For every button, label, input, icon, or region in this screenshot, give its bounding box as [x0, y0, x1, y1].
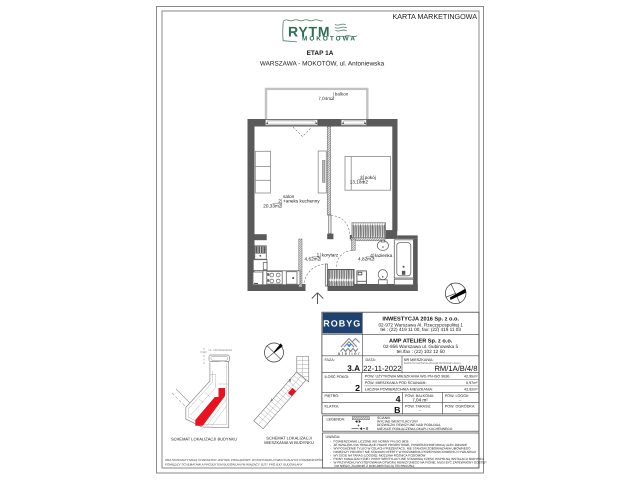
svg-text:3.A: 3.A: [347, 364, 360, 373]
svg-text:atelier: atelier: [338, 351, 362, 356]
svg-text:POMIĘDZY SCHEMATAMI A PROJEKTE: POMIĘDZY SCHEMATAMI A PROJEKTEM BUDOWLAN…: [165, 463, 303, 467]
svg-text:PIĘTRO:: PIĘTRO:: [325, 394, 340, 398]
svg-text:UWAGA:: UWAGA:: [326, 435, 341, 439]
svg-text:ETAP 1A: ETAP 1A: [307, 50, 334, 57]
svg-text:OBA SCHEMATY MAJĄ CHARAKTER JE: OBA SCHEMATY MAJĄ CHARAKTER JEDYNIE POGL…: [165, 458, 323, 462]
svg-text:DO NIEGO, ZGODNIE Z DOKUMENTAC: DO NIEGO, ZGODNIE Z DOKUMENTACJĄ TECHNIC…: [335, 464, 416, 468]
svg-text:FAZA:: FAZA:: [325, 358, 335, 362]
svg-text:42,95m²: 42,95m²: [464, 375, 478, 379]
svg-text:POW. UŻYTKOWA MIESZKANIA WG PN: POW. UŻYTKOWA MIESZKANIA WG PN-ISO 9836:: [365, 374, 451, 379]
svg-text:7,04m2: 7,04m2: [318, 96, 334, 101]
svg-text:POW. LOGGII:: POW. LOGGII:: [445, 394, 469, 398]
svg-text:43,92m²: 43,92m²: [464, 388, 478, 392]
svg-text:WARSZAWA - MOKOTÓW, ul. Antoni: WARSZAWA - MOKOTÓW, ul. Antoniewska: [260, 60, 385, 68]
svg-text:MOKOTOWA: MOKOTOWA: [302, 36, 357, 43]
svg-text:korytarz: korytarz: [322, 253, 339, 258]
svg-text:+aneks kuchenny: +aneks kuchenny: [283, 199, 320, 204]
svg-text:RM/1A/B/4/8: RM/1A/B/4/8: [434, 364, 477, 373]
svg-text:SCHEMAT LOKALIZACJI BUDYNKU: SCHEMAT LOKALIZACJI BUDYNKU: [171, 437, 237, 442]
svg-text:POW. MIESZKANIA POD ŚCIANAMI:: POW. MIESZKANIA POD ŚCIANAMI:: [365, 380, 427, 385]
svg-text:UL. ANTONIEWSKA: UL. ANTONIEWSKA: [209, 349, 233, 352]
svg-text:POW. TARASU:: POW. TARASU:: [405, 404, 431, 408]
svg-text:LEGENDA:: LEGENDA:: [327, 417, 346, 421]
svg-text:2: 2: [355, 383, 360, 393]
svg-text:DATA:: DATA:: [366, 358, 376, 362]
svg-text:ROBYG: ROBYG: [323, 319, 361, 329]
svg-text:13,18m2: 13,18m2: [350, 180, 369, 185]
svg-text:tel./fax : (22) 102 12 50: tel./fax : (22) 102 12 50: [397, 349, 446, 354]
svg-text:KARTA MARKETINGOWA: KARTA MARKETINGOWA: [392, 12, 477, 21]
svg-text:tel.: (22) 419 11 00, fax: (22: tel.: (22) 419 11 00, fax: (22) 419 11 0…: [380, 327, 461, 332]
svg-text:łazienka: łazienka: [375, 253, 393, 258]
svg-text:NR MIESZKANIA:: NR MIESZKANIA:: [404, 358, 434, 362]
svg-text:0,97m²: 0,97m²: [466, 381, 478, 385]
svg-text:4,62m2: 4,62m2: [305, 256, 321, 261]
svg-text:KLATKA:: KLATKA:: [325, 404, 340, 408]
svg-text:MIEJSCE PODŁĄCZENIA OKAPU KUCH: MIEJSCE PODŁĄCZENIA OKAPU KUCHENNEGO: [377, 427, 453, 431]
svg-text:4: 4: [396, 394, 401, 404]
svg-text:MIESZKANIA W BUDYNKU: MIESZKANIA W BUDYNKU: [264, 440, 314, 445]
svg-text:ŁĄCZNA POWIERZCHNIA MIESZKANIA: ŁĄCZNA POWIERZCHNIA MIESZKANIA:: [365, 388, 433, 392]
svg-text:20,33m2: 20,33m2: [263, 204, 282, 209]
svg-text:7,04 m²: 7,04 m²: [412, 398, 428, 403]
svg-text:balkon: balkon: [335, 91, 349, 96]
svg-text:4,82m2: 4,82m2: [358, 256, 374, 261]
svg-text:B: B: [394, 405, 400, 415]
svg-text:ILOŚĆ POKOI:: ILOŚĆ POKOI:: [325, 374, 350, 379]
svg-text:22-11-2022: 22-11-2022: [363, 364, 401, 373]
